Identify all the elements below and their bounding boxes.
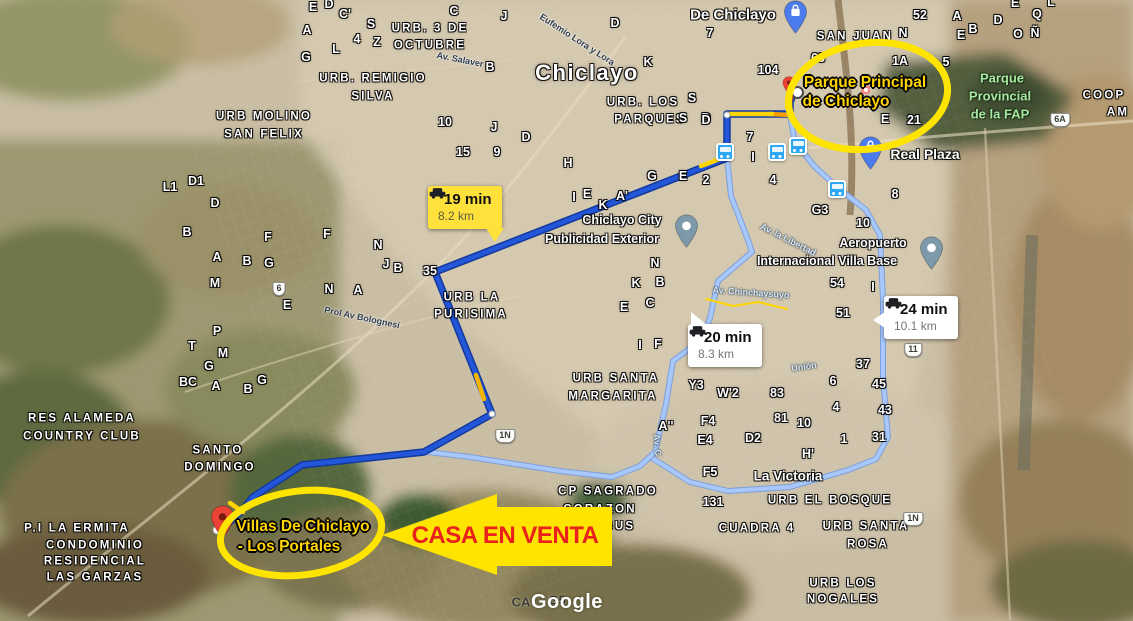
google-watermark: Google [531,591,603,614]
map-canvas[interactable]: ChiclayoDe ChiclayoLa VictoriaURB. 3 DEO… [0,0,1133,621]
destination-annotation-line1: Villas De Chiclayo [236,518,369,536]
casa-en-venta-label: CASA EN VENTA [402,522,608,550]
destination-annotation-line2: - Los Portales [238,538,341,556]
origin-annotation-line2: de Chiclayo [803,93,890,111]
origin-annotation-line1: Parque Principal [804,74,926,92]
